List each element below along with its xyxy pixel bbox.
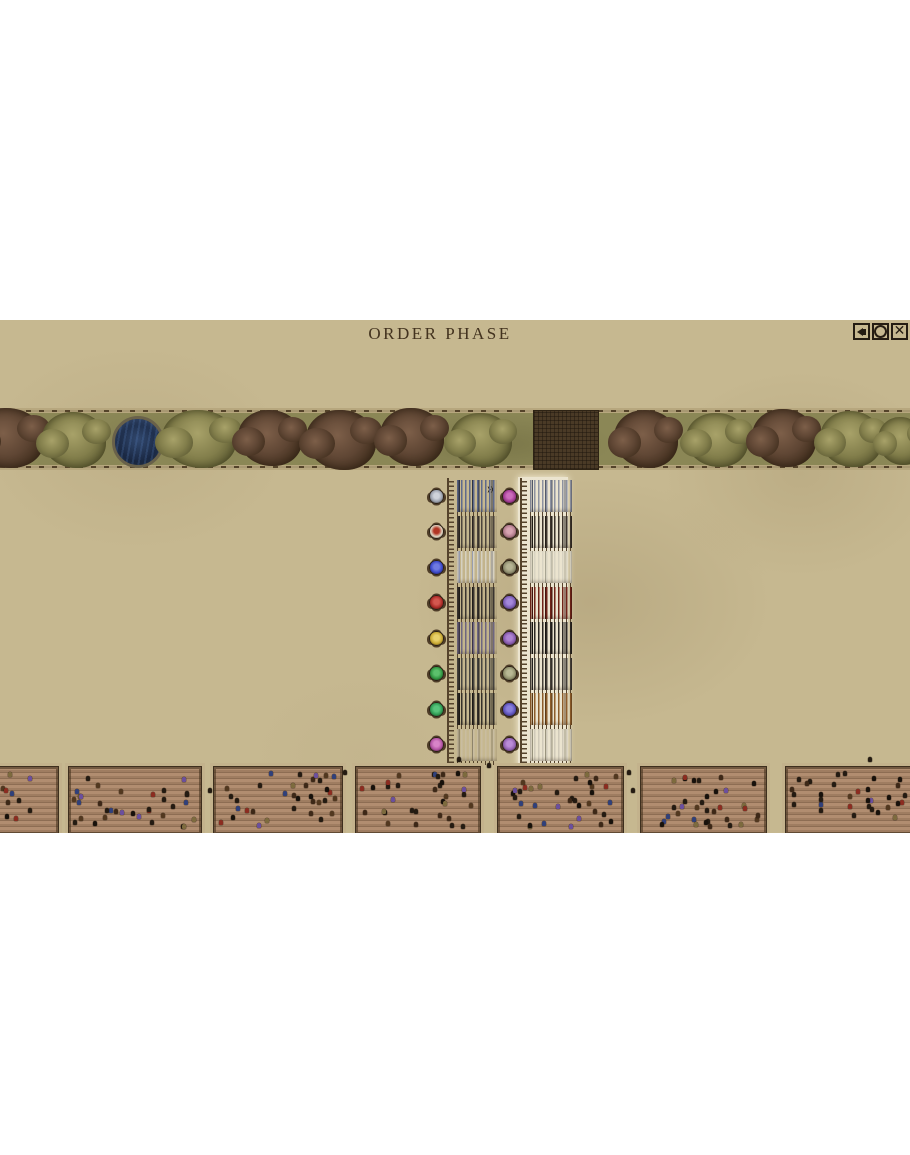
camp-figure	[325, 787, 329, 792]
camp-figure	[604, 784, 608, 789]
camp-figure	[182, 777, 186, 782]
camp-figure	[131, 811, 135, 816]
tree-green	[162, 410, 236, 468]
camp-figure	[719, 775, 723, 780]
unit-left-5[interactable]	[429, 622, 497, 654]
unit-troops	[530, 658, 572, 690]
close-button[interactable]: ✕	[891, 323, 908, 340]
unit-right-1[interactable]	[502, 480, 572, 512]
camp-figure	[896, 801, 900, 806]
camp-figure	[900, 800, 904, 805]
camp-figure	[386, 780, 390, 785]
camp-figure	[75, 789, 79, 794]
unit-left-6[interactable]	[429, 658, 497, 690]
camp-figure	[79, 794, 83, 799]
camp-figure	[245, 808, 249, 813]
camp-figure	[323, 798, 327, 803]
camp-figure	[151, 792, 155, 797]
camp-figure	[137, 814, 141, 819]
camp-figure	[697, 778, 701, 783]
camp-figure	[360, 786, 364, 791]
camp-figure	[414, 809, 418, 814]
tree-brown	[238, 410, 302, 466]
camp-figure	[608, 800, 612, 805]
camp-figure	[692, 778, 696, 783]
unit-right-3[interactable]	[502, 551, 572, 583]
camp-figure	[291, 783, 295, 788]
camp-figure	[309, 811, 313, 816]
camp-figure	[184, 800, 188, 805]
camp-figure	[819, 797, 823, 802]
camp-figure	[574, 776, 578, 781]
unit-troops	[530, 480, 572, 512]
camp-figure	[694, 822, 698, 827]
unit-leader-icon	[502, 524, 517, 539]
unit-troops	[530, 693, 572, 725]
camp-figure	[410, 808, 414, 813]
camp-figure	[724, 788, 728, 793]
camp-figure	[714, 789, 718, 794]
terrain-strip	[0, 408, 910, 470]
camp-figure	[555, 790, 559, 795]
camp-figure	[728, 823, 732, 828]
camp-figure	[797, 777, 801, 782]
camp-figure	[319, 817, 323, 822]
camp-figure	[309, 794, 313, 799]
camp-figure	[836, 772, 840, 777]
camp-figure	[852, 813, 856, 818]
camp-figure	[523, 785, 527, 790]
camp-figure	[235, 798, 239, 803]
camp-figure	[808, 779, 812, 784]
camp-figure	[695, 805, 699, 810]
hud-buttons: ✕	[853, 323, 908, 340]
phase-title: ORDER PHASE	[0, 324, 880, 344]
camp-figure	[298, 772, 302, 777]
camp-figure	[461, 824, 465, 829]
camp-figure	[577, 803, 581, 808]
camp-figure	[86, 776, 90, 781]
unit-rank-ticks	[520, 620, 527, 656]
mute-button[interactable]	[853, 323, 870, 340]
camp-figure	[225, 786, 229, 791]
camp-figure	[447, 816, 451, 821]
camp-figure	[73, 820, 77, 825]
camp-figure	[283, 791, 287, 796]
camp-figure	[185, 791, 189, 796]
unit-rank-ticks	[520, 514, 527, 550]
camp-figure	[876, 810, 880, 815]
camp-figure	[96, 783, 100, 788]
camp-figure	[258, 783, 262, 788]
camp-figure	[444, 794, 448, 799]
unit-leader-icon	[429, 595, 444, 610]
camp-figure	[887, 795, 891, 800]
camp-figure	[672, 778, 676, 783]
camp-figure	[521, 780, 525, 785]
camp-figure	[843, 771, 847, 776]
camp-figure	[182, 824, 186, 829]
camp-figure	[518, 789, 522, 794]
camp-figure	[743, 806, 747, 811]
unit-right-7[interactable]	[502, 693, 572, 725]
unit-left-4[interactable]	[429, 587, 497, 619]
unit-leader-icon	[429, 524, 444, 539]
unit-rank-ticks	[520, 727, 527, 763]
camp-figure	[599, 822, 603, 827]
plot	[533, 410, 599, 470]
close-icon: ✕	[894, 325, 906, 338]
camp-figure	[903, 793, 907, 798]
camp-figure	[77, 800, 81, 805]
unit-troops	[457, 551, 497, 583]
camp-figure	[680, 804, 684, 809]
tree-green	[42, 412, 106, 468]
camp-figure	[28, 776, 32, 781]
camp-field-3[interactable]	[213, 766, 343, 833]
camp-figure	[433, 787, 437, 792]
unit-right-8[interactable]	[502, 729, 572, 761]
unit-rank-ticks	[447, 585, 454, 621]
unit-leader-icon	[502, 595, 517, 610]
camp-figure	[469, 803, 473, 808]
camp-figure	[119, 789, 123, 794]
camp-figure	[517, 814, 521, 819]
camp-figure	[587, 801, 591, 806]
camp-figure	[705, 808, 709, 813]
camp-figure	[236, 806, 240, 811]
camp-figure	[705, 794, 709, 799]
camp-figure	[542, 821, 546, 826]
unit-troops	[457, 658, 497, 690]
camp-figure	[609, 819, 613, 824]
unit-troops	[530, 729, 572, 761]
camp-figure	[269, 771, 273, 776]
unit-rank-ticks	[447, 478, 454, 514]
unit-troops	[457, 516, 497, 548]
camp-figure	[819, 792, 823, 797]
camp-figure	[391, 797, 395, 802]
camp-figure	[614, 774, 618, 779]
unit-rank-ticks	[447, 514, 454, 550]
camp-figure	[752, 781, 756, 786]
unit-troops	[457, 729, 497, 761]
camp-figure	[324, 773, 328, 778]
camp-figure	[556, 804, 560, 809]
camp-figure	[147, 807, 151, 812]
camp-figure	[333, 796, 337, 801]
unit-leader-icon	[502, 560, 517, 575]
tree-brown	[614, 410, 678, 468]
camp-figure	[162, 797, 166, 802]
camp-figure	[848, 804, 852, 809]
camp-figure	[519, 801, 523, 806]
camp-figure	[533, 803, 537, 808]
camp-figure	[397, 773, 401, 778]
camp-figure	[386, 821, 390, 826]
camp-figure	[304, 783, 308, 788]
camp-figure	[463, 772, 467, 777]
camp-figure	[317, 800, 321, 805]
unit-leader-icon	[502, 489, 517, 504]
camp-figure	[318, 778, 322, 783]
camp-figure	[10, 791, 14, 796]
camp-figure	[456, 771, 460, 776]
camp-figure	[683, 775, 687, 780]
unit-leader-icon	[429, 489, 444, 504]
camp-figure	[712, 809, 716, 814]
unit-leader-icon	[502, 737, 517, 752]
unit-troops	[530, 622, 572, 654]
camp-figure	[4, 788, 8, 793]
camp-figure	[8, 772, 12, 777]
camp-figure	[462, 792, 466, 797]
camp-figure	[219, 820, 223, 825]
camp-figure	[441, 772, 445, 777]
stray-figure	[868, 757, 872, 762]
camp-figure	[676, 811, 680, 816]
camp-figure	[568, 798, 572, 803]
unit-left-2[interactable]	[429, 516, 497, 548]
unit-troops	[530, 551, 572, 583]
camp-figure	[162, 788, 166, 793]
camp-figure	[436, 774, 440, 779]
camp-field-1[interactable]	[0, 766, 59, 833]
camp-field-4[interactable]	[355, 766, 481, 833]
unit-troops	[457, 622, 497, 654]
unit-troops	[530, 587, 572, 619]
camp-figure	[594, 776, 598, 781]
camp-figure	[462, 787, 466, 792]
camp-figure	[79, 816, 83, 821]
camp-figure	[513, 788, 517, 793]
camp-figure	[396, 783, 400, 788]
camp-figure	[363, 810, 367, 815]
camp-figure	[251, 809, 255, 814]
unit-rank-ticks	[447, 727, 454, 763]
camp-figure	[718, 805, 722, 810]
camp-figure	[5, 814, 9, 819]
camp-figure	[704, 820, 708, 825]
tree-brown	[380, 408, 444, 466]
camp-figure	[792, 802, 796, 807]
window-button[interactable]	[872, 323, 889, 340]
camp-figure	[231, 815, 235, 820]
camp-figure	[739, 822, 743, 827]
camp-figure	[382, 809, 386, 814]
camp-figure	[848, 794, 852, 799]
camp-figure	[869, 798, 873, 803]
camp-figure	[6, 800, 10, 805]
stray-figure	[343, 770, 347, 775]
camp-figure	[819, 808, 823, 813]
camp-figure	[585, 772, 589, 777]
camp-figure	[292, 806, 296, 811]
camp-figure	[17, 798, 21, 803]
camp-figure	[330, 811, 334, 816]
unit-leader-icon	[429, 737, 444, 752]
camp-figure	[292, 793, 296, 798]
camp-figure	[14, 816, 18, 821]
unit-left-1[interactable]	[429, 480, 497, 512]
camp-figure	[440, 780, 444, 785]
camp-figure	[103, 815, 107, 820]
camp-figure	[513, 795, 517, 800]
camp-figure	[790, 787, 794, 792]
camp-figure	[529, 786, 533, 791]
unit-leader-icon	[429, 631, 444, 646]
screen: ORDER PHASE ✕ »	[0, 0, 910, 1155]
tree-brown	[306, 410, 376, 470]
camp-figure	[666, 814, 670, 819]
camp-figure	[414, 822, 418, 827]
unit-left-8[interactable]	[429, 729, 497, 761]
game-area[interactable]: ORDER PHASE ✕ »	[0, 320, 910, 833]
camp-field-2[interactable]	[68, 766, 202, 833]
camp-figure	[314, 773, 318, 778]
unit-leader-icon	[502, 631, 517, 646]
camp-figure	[528, 823, 532, 828]
stray-figure	[631, 788, 635, 793]
camp-figure	[896, 783, 900, 788]
camp-figure	[72, 797, 76, 802]
camp-figure	[265, 818, 269, 823]
camp-figure	[450, 823, 454, 828]
unit-right-5[interactable]	[502, 622, 572, 654]
unit-left-7[interactable]	[429, 693, 497, 725]
stray-figure	[457, 757, 461, 762]
camp-figure	[708, 824, 712, 829]
unit-right-2[interactable]	[502, 516, 572, 548]
unit-troops	[457, 587, 497, 619]
camp-figure	[856, 789, 860, 794]
camp-field-7[interactable]	[785, 766, 910, 833]
unit-left-3[interactable]	[429, 551, 497, 583]
camp-field-5[interactable]	[497, 766, 624, 833]
camp-figure	[538, 784, 542, 789]
unit-rank-ticks	[520, 691, 527, 727]
camp-figure	[725, 817, 729, 822]
unit-right-6[interactable]	[502, 658, 572, 690]
camp-figure	[602, 812, 606, 817]
camp-figure	[756, 813, 760, 818]
camp-figure	[886, 805, 890, 810]
camp-figure	[438, 813, 442, 818]
unit-rank-ticks	[520, 585, 527, 621]
camp-figure	[898, 777, 902, 782]
camp-figure	[311, 799, 315, 804]
camp-figure	[805, 781, 809, 786]
camp-figure	[120, 810, 124, 815]
tree-green	[686, 413, 748, 467]
unit-rank-ticks	[520, 478, 527, 514]
camp-figure	[832, 782, 836, 787]
camp-figure	[443, 801, 447, 806]
camp-figure	[98, 801, 102, 806]
camp-figure	[114, 809, 118, 814]
unit-rank-ticks	[520, 549, 527, 585]
unit-rank-ticks	[447, 691, 454, 727]
camp-figure	[371, 785, 375, 790]
camp-figure	[93, 821, 97, 826]
camp-figure	[672, 805, 676, 810]
unit-troops	[530, 516, 572, 548]
unit-rank-ticks	[447, 656, 454, 692]
unit-leader-icon	[502, 666, 517, 681]
camp-figure	[192, 817, 196, 822]
stray-figure	[487, 763, 491, 768]
unit-leader-icon	[429, 560, 444, 575]
tree-brown	[752, 409, 816, 467]
camp-figure	[171, 804, 175, 809]
camp-figure	[229, 794, 233, 799]
stray-figure	[208, 788, 212, 793]
unit-troops	[457, 480, 497, 512]
camp-figure	[590, 790, 594, 795]
camp-figure	[109, 808, 113, 813]
camp-figure	[577, 816, 581, 821]
camp-figure	[700, 800, 704, 805]
speaker-icon	[857, 328, 866, 336]
camp-field-6[interactable]	[640, 766, 767, 833]
camp-figure	[893, 815, 897, 820]
camp-figure	[150, 820, 154, 825]
camp-figure	[867, 804, 871, 809]
camp-figure	[866, 787, 870, 792]
unit-leader-icon	[429, 702, 444, 717]
unit-rank-ticks	[447, 549, 454, 585]
camp-figure	[866, 798, 870, 803]
unit-troops	[457, 693, 497, 725]
camp-figure	[792, 792, 796, 797]
camp-figure	[296, 796, 300, 801]
unit-leader-icon	[502, 702, 517, 717]
unit-rank-ticks	[447, 620, 454, 656]
camp-figure	[819, 802, 823, 807]
camp-figure	[683, 799, 687, 804]
camp-figure	[28, 808, 32, 813]
tree-green	[450, 413, 512, 467]
stray-figure	[627, 770, 631, 775]
unit-rank-ticks	[520, 656, 527, 692]
camp-figure	[593, 809, 597, 814]
camp-figure	[311, 777, 315, 782]
unit-leader-icon	[429, 666, 444, 681]
camp-figure	[660, 822, 664, 827]
camp-figure	[332, 774, 336, 779]
camp-figure	[872, 776, 876, 781]
camp-figure	[755, 817, 759, 822]
camp-figure	[257, 823, 261, 828]
camp-figure	[161, 813, 165, 818]
unit-right-4[interactable]	[502, 587, 572, 619]
circle-icon	[874, 325, 887, 338]
camp-figure	[569, 824, 573, 829]
